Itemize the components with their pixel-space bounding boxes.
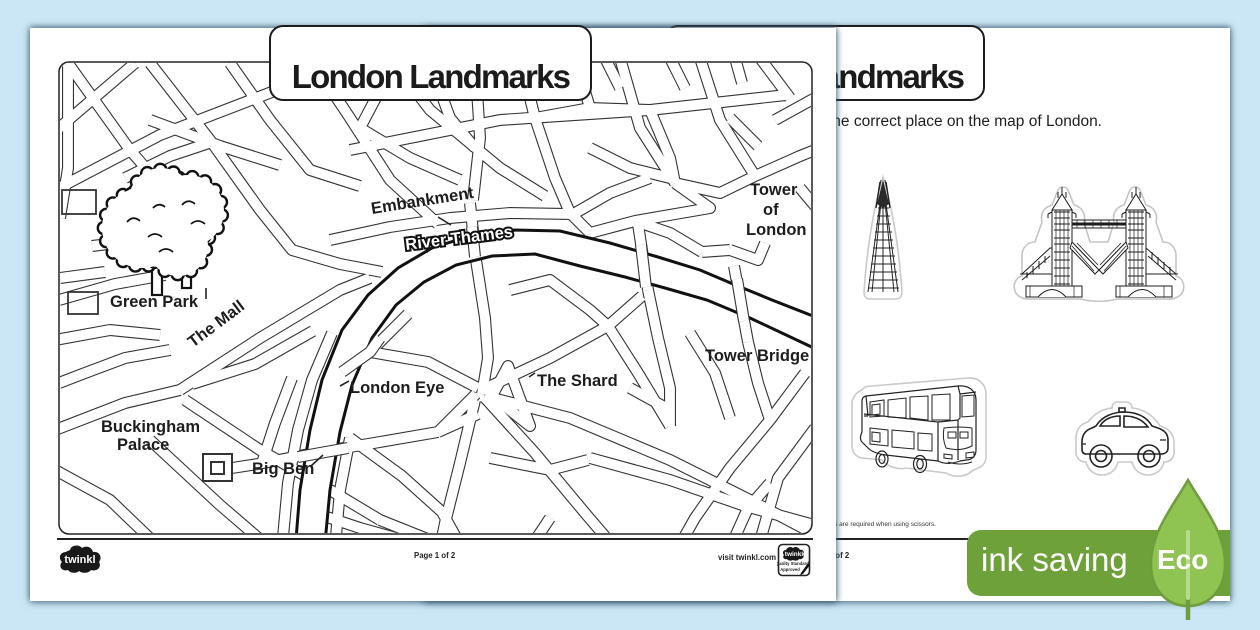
svg-text:Green Park: Green Park <box>110 293 199 311</box>
svg-text:Tower: Tower <box>750 181 798 199</box>
svg-text:of: of <box>763 201 779 219</box>
svg-text:twinkl: twinkl <box>785 551 804 558</box>
svg-text:Approved: Approved <box>780 567 800 572</box>
svg-text:London Eye: London Eye <box>350 379 444 397</box>
svg-text:London: London <box>746 221 806 239</box>
svg-text:Big Ben: Big Ben <box>252 460 314 478</box>
svg-text:Tower Bridge: Tower Bridge <box>705 347 809 365</box>
svg-text:Quality Standard: Quality Standard <box>777 561 809 566</box>
svg-text:The Shard: The Shard <box>537 372 618 390</box>
svg-text:twinkl: twinkl <box>64 554 95 566</box>
svg-text:Palace: Palace <box>117 436 169 454</box>
svg-text:Buckingham: Buckingham <box>101 418 200 436</box>
